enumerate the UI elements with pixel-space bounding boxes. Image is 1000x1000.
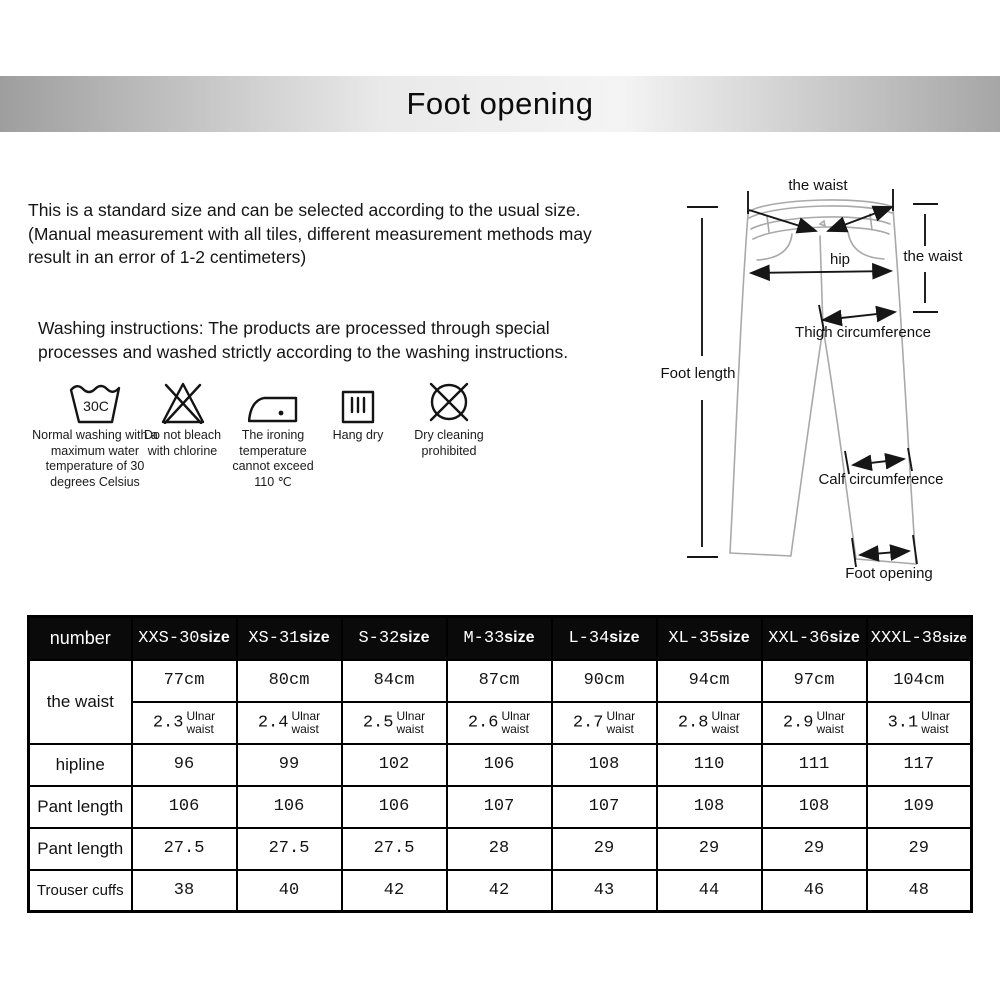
table-cell: 2.8Ulnarwaist xyxy=(657,702,762,744)
intro-line: (Manual measurement with all tiles, diff… xyxy=(28,223,592,247)
header-size-xl: XL-35size xyxy=(657,617,762,660)
table-cell: 40 xyxy=(237,870,342,912)
foot-length-measure: Foot length xyxy=(660,207,735,557)
foot-opening-label: Foot opening xyxy=(845,565,933,582)
table-cell: 108 xyxy=(762,786,867,828)
title-banner: Foot opening xyxy=(0,76,1000,132)
no-bleach-icon xyxy=(160,378,206,424)
table-header-row: number XXS-30size XS-31size S-32size M-3… xyxy=(29,617,972,660)
table-cell: 28 xyxy=(447,828,552,870)
table-cell: 108 xyxy=(552,744,657,786)
table-cell: 80cm xyxy=(237,660,342,702)
header-size-xs: XS-31size xyxy=(237,617,342,660)
table-cell: 38 xyxy=(132,870,237,912)
table-cell: 46 xyxy=(762,870,867,912)
washing-instructions-paragraph: Washing instructions: The products are p… xyxy=(38,317,568,364)
care-caption: Hang dry xyxy=(333,428,384,444)
care-caption: Dry cleaning prohibited xyxy=(394,428,504,459)
header-size-s: S-32size xyxy=(342,617,447,660)
table-cell: 42 xyxy=(342,870,447,912)
table-cell: 29 xyxy=(552,828,657,870)
waist-ulnar-row: 2.3Ulnarwaist 2.4Ulnarwaist 2.5Ulnarwais… xyxy=(29,702,972,744)
size-intro-paragraph: This is a standard size and can be selec… xyxy=(28,199,592,270)
care-item-no-dry-clean: Dry cleaning prohibited xyxy=(394,378,504,459)
table-cell: 77cm xyxy=(132,660,237,702)
row-label-trouser-cuffs: Trouser cuffs xyxy=(29,870,132,912)
table-cell: 94cm xyxy=(657,660,762,702)
care-item-iron: The ironing temperature cannot exceed 11… xyxy=(228,378,318,490)
table-cell: 27.5 xyxy=(132,828,237,870)
table-cell: 102 xyxy=(342,744,447,786)
intro-line: result in an error of 1-2 centimeters) xyxy=(28,246,592,270)
header-size-xxxl: XXXL-38size xyxy=(867,617,972,660)
table-cell: 110 xyxy=(657,744,762,786)
row-label-pant-length-2: Pant length xyxy=(29,828,132,870)
table-cell: 111 xyxy=(762,744,867,786)
hang-dry-icon xyxy=(341,378,375,424)
foot-length-label: Foot length xyxy=(660,365,735,382)
table-cell: 104cm xyxy=(867,660,972,702)
table-cell: 87cm xyxy=(447,660,552,702)
table-cell: 3.1Ulnarwaist xyxy=(867,702,972,744)
table-cell: 29 xyxy=(867,828,972,870)
hipline-row: hipline 96 99 102 106 108 110 111 117 xyxy=(29,744,972,786)
header-size-xxs: XXS-30size xyxy=(132,617,237,660)
waist-cm-row: the waist 77cm 80cm 84cm 87cm 90cm 94cm … xyxy=(29,660,972,702)
care-caption: Do not bleach with chlorine xyxy=(135,428,230,459)
table-cell: 48 xyxy=(867,870,972,912)
table-cell: 2.6Ulnarwaist xyxy=(447,702,552,744)
table-cell: 2.7Ulnarwaist xyxy=(552,702,657,744)
table-cell: 106 xyxy=(237,786,342,828)
intro-line: This is a standard size and can be selec… xyxy=(28,199,592,223)
thigh-measure: Thigh circumference xyxy=(795,305,931,341)
care-item-hang-dry: Hang dry xyxy=(318,378,398,444)
table-cell: 44 xyxy=(657,870,762,912)
table-cell: 43 xyxy=(552,870,657,912)
header-size-l: L-34size xyxy=(552,617,657,660)
header-number: number xyxy=(29,617,132,660)
thigh-label: Thigh circumference xyxy=(795,324,931,341)
table-cell: 99 xyxy=(237,744,342,786)
hip-label: hip xyxy=(830,251,850,268)
table-cell: 2.3Ulnarwaist xyxy=(132,702,237,744)
row-label-pant-length: Pant length xyxy=(29,786,132,828)
table-cell: 42 xyxy=(447,870,552,912)
washing-line: processes and washed strictly according … xyxy=(38,341,568,365)
waist-top-label: the waist xyxy=(788,177,848,194)
table-cell: 90cm xyxy=(552,660,657,702)
table-cell: 106 xyxy=(447,744,552,786)
table-cell: 107 xyxy=(447,786,552,828)
pants-diagram: the waist hip the waist Thigh circumfere… xyxy=(650,160,1000,605)
header-size-m: M-33size xyxy=(447,617,552,660)
row-label-waist: the waist xyxy=(29,660,132,744)
wash-30-icon: 30C xyxy=(69,378,121,424)
care-caption: The ironing temperature cannot exceed 11… xyxy=(228,428,318,490)
table-cell: 106 xyxy=(342,786,447,828)
page-title: Foot opening xyxy=(407,86,594,122)
waist-right-label: the waist xyxy=(903,248,963,265)
size-table: number XXS-30size XS-31size S-32size M-3… xyxy=(27,615,973,913)
table-cell: 84cm xyxy=(342,660,447,702)
wash-temp-text: 30C xyxy=(83,398,109,414)
table-cell: 106 xyxy=(132,786,237,828)
table-cell: 29 xyxy=(762,828,867,870)
table-cell: 27.5 xyxy=(342,828,447,870)
no-dry-cleaning-icon xyxy=(427,378,471,424)
calf-label: Calf circumference xyxy=(818,471,943,488)
table-cell: 97cm xyxy=(762,660,867,702)
table-cell: 2.5Ulnarwaist xyxy=(342,702,447,744)
calf-measure: Calf circumference xyxy=(818,448,943,488)
table-cell: 27.5 xyxy=(237,828,342,870)
table-cell: 2.4Ulnarwaist xyxy=(237,702,342,744)
table-cell: 109 xyxy=(867,786,972,828)
iron-max-110-icon xyxy=(248,378,298,424)
pant-length-row: Pant length 106 106 106 107 107 108 108 … xyxy=(29,786,972,828)
table-cell: 96 xyxy=(132,744,237,786)
pants-outline xyxy=(730,200,916,564)
care-item-no-bleach: Do not bleach with chlorine xyxy=(135,378,230,459)
washing-line: Washing instructions: The products are p… xyxy=(38,317,568,341)
header-size-xxl: XXL-36size xyxy=(762,617,867,660)
pant-length-row-2: Pant length 27.5 27.5 27.5 28 29 29 29 2… xyxy=(29,828,972,870)
trouser-cuffs-row: Trouser cuffs 38 40 42 42 43 44 46 48 xyxy=(29,870,972,912)
table-cell: 108 xyxy=(657,786,762,828)
waist-right-measure: the waist xyxy=(903,204,963,312)
table-cell: 2.9Ulnarwaist xyxy=(762,702,867,744)
table-cell: 29 xyxy=(657,828,762,870)
row-label-hipline: hipline xyxy=(29,744,132,786)
table-cell: 117 xyxy=(867,744,972,786)
table-cell: 107 xyxy=(552,786,657,828)
